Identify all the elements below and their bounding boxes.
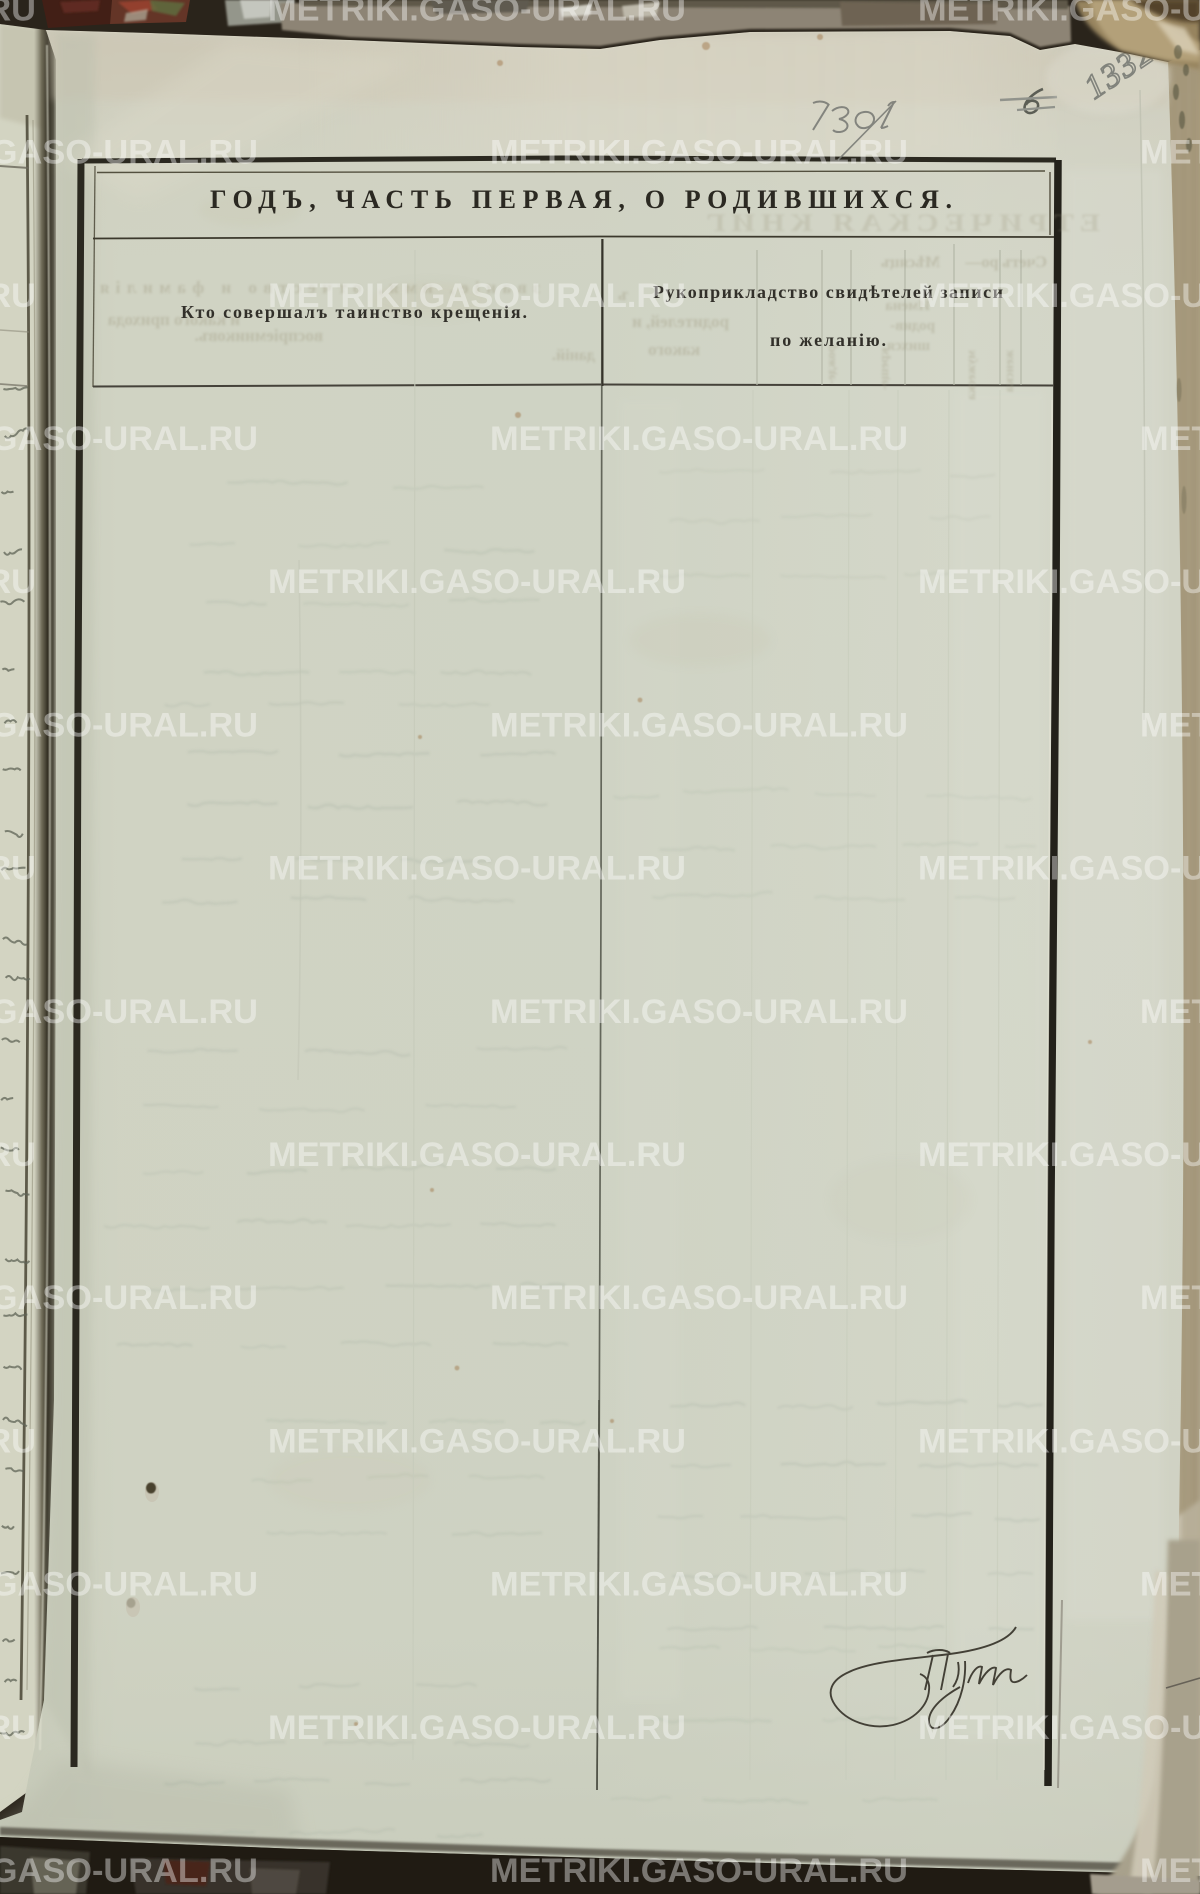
svg-text:METRIKI.GASO-URAL.RU: METRIKI.GASO-URAL.RU: [1140, 706, 1200, 744]
svg-text:METRIKI.GASO-URAL.RU: METRIKI.GASO-URAL.RU: [0, 706, 258, 744]
svg-text:METRIKI.GASO-URAL.RU: METRIKI.GASO-URAL.RU: [268, 1136, 686, 1174]
svg-text:METRIKI.GASO-URAL.RU: METRIKI.GASO-URAL.RU: [918, 277, 1200, 315]
svg-text:METRIKI.GASO-URAL.RU: METRIKI.GASO-URAL.RU: [918, 0, 1200, 28]
svg-text:ЕТРИЧЕСКАЯ КНИГ: ЕТРИЧЕСКАЯ КНИГ: [700, 210, 1100, 237]
svg-text:METRIKI.GASO-URAL.RU: METRIKI.GASO-URAL.RU: [0, 1709, 36, 1747]
svg-text:METRIKI.GASO-URAL.RU: METRIKI.GASO-URAL.RU: [0, 1566, 258, 1604]
svg-text:METRIKI.GASO-URAL.RU: METRIKI.GASO-URAL.RU: [0, 420, 258, 458]
svg-text:Счетъ ро—: Счетъ ро—: [964, 254, 1047, 271]
svg-text:METRIKI.GASO-URAL.RU: METRIKI.GASO-URAL.RU: [0, 277, 36, 315]
svg-text:METRIKI.GASO-URAL.RU: METRIKI.GASO-URAL.RU: [918, 1709, 1200, 1747]
svg-text:METRIKI.GASO-URAL.RU: METRIKI.GASO-URAL.RU: [1140, 420, 1200, 458]
svg-text:мужеска: мужеска: [963, 350, 978, 400]
svg-text:METRIKI.GASO-URAL.RU: METRIKI.GASO-URAL.RU: [490, 993, 908, 1031]
svg-text:даній.: даній.: [552, 347, 595, 364]
svg-text:родив-: родив-: [890, 318, 935, 334]
svg-text:METRIKI.GASO-URAL.RU: METRIKI.GASO-URAL.RU: [268, 563, 686, 601]
svg-text:Мѣсяцъ: Мѣсяцъ: [881, 254, 940, 271]
svg-text:METRIKI.GASO-URAL.RU: METRIKI.GASO-URAL.RU: [268, 1709, 686, 1747]
svg-text:METRIKI.GASO-URAL.RU: METRIKI.GASO-URAL.RU: [268, 277, 686, 315]
svg-text:METRIKI.GASO-URAL.RU: METRIKI.GASO-URAL.RU: [268, 1422, 686, 1460]
svg-text:METRIKI.GASO-URAL.RU: METRIKI.GASO-URAL.RU: [490, 706, 908, 744]
svg-text:METRIKI.GASO-URAL.RU: METRIKI.GASO-URAL.RU: [0, 134, 258, 172]
svg-text:METRIKI.GASO-URAL.RU: METRIKI.GASO-URAL.RU: [0, 563, 36, 601]
svg-text:по желанію.: по желанію.: [770, 330, 886, 350]
svg-text:женска: женска: [1001, 350, 1016, 393]
svg-text:METRIKI.GASO-URAL.RU: METRIKI.GASO-URAL.RU: [918, 1136, 1200, 1174]
svg-text:METRIKI.GASO-URAL.RU: METRIKI.GASO-URAL.RU: [1140, 1566, 1200, 1604]
svg-text:METRIKI.GASO-URAL.RU: METRIKI.GASO-URAL.RU: [490, 420, 908, 458]
svg-text:METRIKI.GASO-URAL.RU: METRIKI.GASO-URAL.RU: [0, 0, 36, 28]
svg-text:METRIKI.GASO-URAL.RU: METRIKI.GASO-URAL.RU: [1140, 1279, 1200, 1317]
svg-text:METRIKI.GASO-URAL.RU: METRIKI.GASO-URAL.RU: [918, 563, 1200, 601]
svg-text:воспріемниковъ.: воспріемниковъ.: [195, 326, 323, 345]
svg-text:METRIKI.GASO-URAL.RU: METRIKI.GASO-URAL.RU: [268, 850, 686, 888]
svg-text:METRIKI.GASO-URAL.RU: METRIKI.GASO-URAL.RU: [1140, 134, 1200, 172]
svg-text:рожде-: рожде-: [823, 345, 838, 385]
svg-text:METRIKI.GASO-URAL.RU: METRIKI.GASO-URAL.RU: [268, 0, 686, 28]
svg-text:какого: какого: [648, 340, 700, 359]
svg-text:METRIKI.GASO-URAL.RU: METRIKI.GASO-URAL.RU: [490, 1279, 908, 1317]
svg-text:METRIKI.GASO-URAL.RU: METRIKI.GASO-URAL.RU: [918, 1422, 1200, 1460]
svg-text:METRIKI.GASO-URAL.RU: METRIKI.GASO-URAL.RU: [0, 1422, 36, 1460]
svg-text:METRIKI.GASO-URAL.RU: METRIKI.GASO-URAL.RU: [0, 1136, 36, 1174]
svg-text:METRIKI.GASO-URAL.RU: METRIKI.GASO-URAL.RU: [0, 993, 258, 1031]
svg-text:METRIKI.GASO-URAL.RU: METRIKI.GASO-URAL.RU: [490, 1852, 908, 1890]
svg-text:METRIKI.GASO-URAL.RU: METRIKI.GASO-URAL.RU: [0, 1279, 258, 1317]
svg-text:METRIKI.GASO-URAL.RU: METRIKI.GASO-URAL.RU: [0, 850, 36, 888]
svg-text:родителей, и: родителей, и: [632, 312, 729, 331]
svg-text:METRIKI.GASO-URAL.RU: METRIKI.GASO-URAL.RU: [1140, 993, 1200, 1031]
svg-text:креще-: креще-: [876, 348, 891, 390]
svg-text:METRIKI.GASO-URAL.RU: METRIKI.GASO-URAL.RU: [0, 1852, 258, 1890]
svg-text:METRIKI.GASO-URAL.RU: METRIKI.GASO-URAL.RU: [918, 850, 1200, 888]
svg-text:METRIKI.GASO-URAL.RU: METRIKI.GASO-URAL.RU: [490, 134, 908, 172]
svg-text:METRIKI.GASO-URAL.RU: METRIKI.GASO-URAL.RU: [1140, 1852, 1200, 1890]
svg-text:METRIKI.GASO-URAL.RU: METRIKI.GASO-URAL.RU: [490, 1566, 908, 1604]
